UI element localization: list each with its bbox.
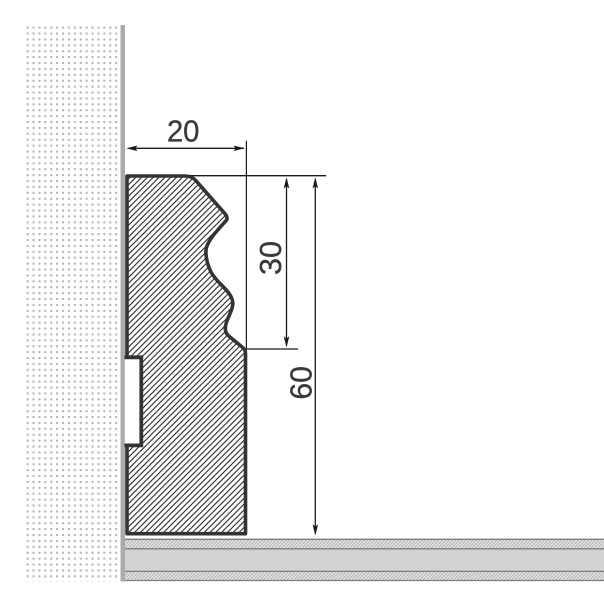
svg-text:30: 30 [253,241,288,275]
svg-text:60: 60 [283,366,318,400]
svg-text:20: 20 [167,113,200,148]
